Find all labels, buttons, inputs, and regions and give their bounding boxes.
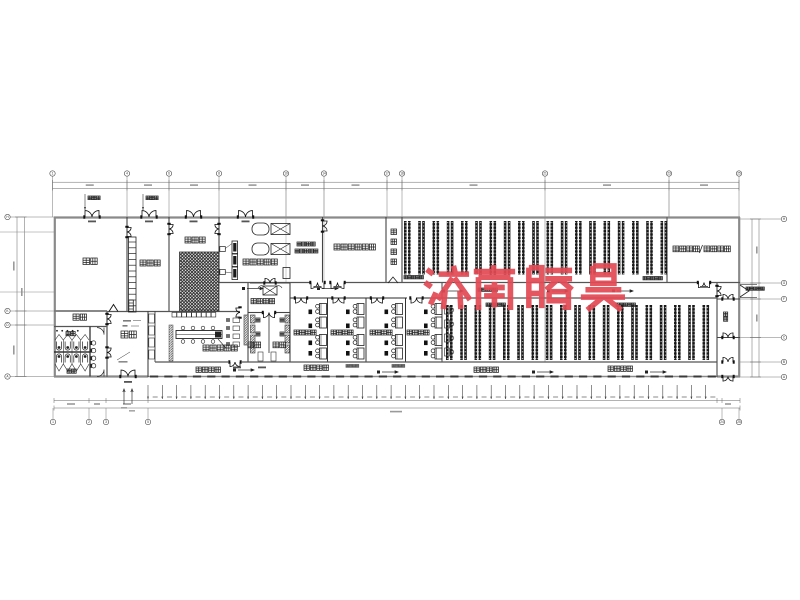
svg-text:25: 25 [737, 420, 741, 424]
svg-text:17: 17 [385, 172, 389, 176]
svg-text:B: B [783, 360, 785, 364]
svg-text:1: 1 [52, 172, 54, 176]
svg-text:8: 8 [218, 172, 220, 176]
svg-text:5: 5 [147, 420, 149, 424]
svg-text:14: 14 [322, 172, 326, 176]
svg-text:21: 21 [543, 172, 547, 176]
svg-text:10: 10 [284, 172, 288, 176]
svg-text:23: 23 [667, 172, 671, 176]
svg-text:1: 1 [52, 420, 54, 424]
svg-text:18: 18 [400, 172, 404, 176]
svg-text:24: 24 [720, 420, 724, 424]
svg-text:3: 3 [105, 420, 107, 424]
svg-text:6: 6 [168, 172, 170, 176]
svg-text:4: 4 [126, 172, 128, 176]
svg-text:25: 25 [737, 172, 741, 176]
svg-text:2: 2 [88, 420, 90, 424]
svg-text:F: F [783, 297, 785, 301]
